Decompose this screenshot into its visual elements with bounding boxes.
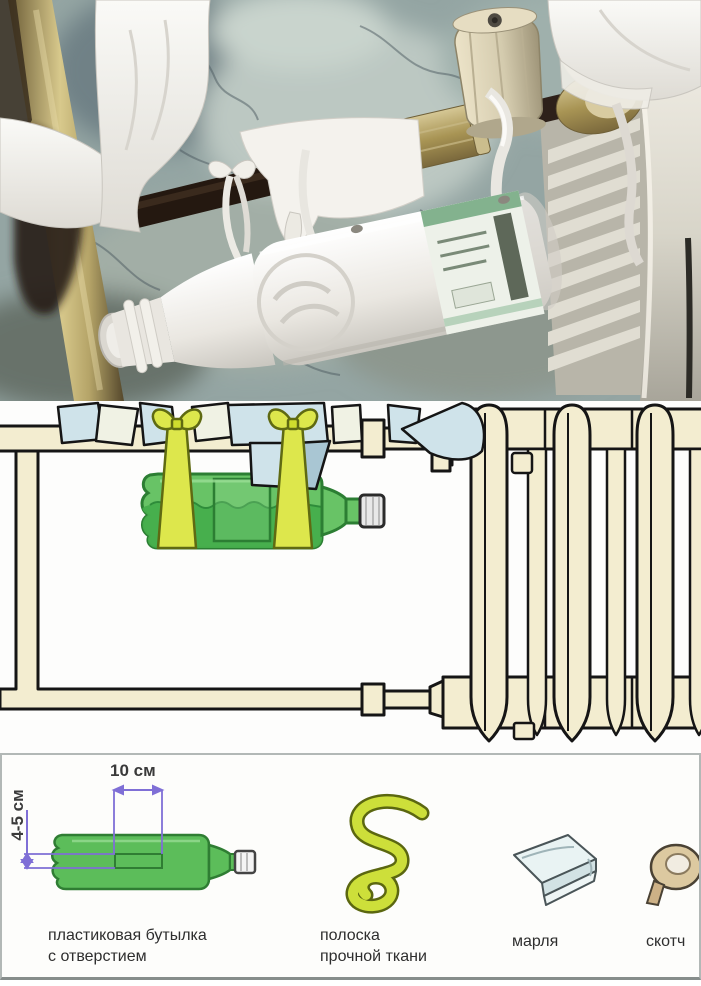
diy-humidifier-instruction: 10 см 4-5 см пластиковая бутылка с отвер… xyxy=(0,0,701,986)
radiator-plug xyxy=(512,453,532,473)
radiator-front-fins xyxy=(471,405,673,741)
radiator-bottle-photo xyxy=(0,0,701,401)
label-line: полоска xyxy=(320,925,427,946)
cut-hole xyxy=(214,479,270,541)
fabric-strip-icon xyxy=(353,801,422,906)
label-line: с отверстием xyxy=(48,946,207,967)
label-line: пластиковая бутылка xyxy=(48,925,207,946)
label-tape: скотч xyxy=(646,931,685,952)
label-fabric-strip: полоска прочной ткани xyxy=(320,925,427,967)
bottle-cap xyxy=(360,495,384,527)
materials-panel-frame: 10 см 4-5 см пластиковая бутылка с отвер… xyxy=(0,753,701,980)
hole-width-measurement: 10 см xyxy=(110,761,156,781)
diagram-radiator xyxy=(443,405,701,741)
diagram-pipes xyxy=(0,413,452,717)
installation-diagram xyxy=(0,401,701,753)
label-plastic-bottle: пластиковая бутылка с отверстием xyxy=(48,925,207,967)
gauze-icon xyxy=(514,835,596,905)
cap xyxy=(235,851,255,873)
tape-icon xyxy=(647,845,699,905)
photo-section xyxy=(0,0,701,401)
label-line: марля xyxy=(512,931,558,952)
diagram-section xyxy=(0,401,701,753)
hole-height-measurement: 4-5 см xyxy=(8,789,28,840)
label-gauze: марля xyxy=(512,931,558,952)
materials-panel: 10 см 4-5 см пластиковая бутылка с отвер… xyxy=(0,753,701,986)
radiator-drain xyxy=(514,723,534,739)
bottle-with-hole-icon xyxy=(52,835,255,889)
label-line: скотч xyxy=(646,931,685,952)
label-line: прочной ткани xyxy=(320,946,427,967)
radiator-gap xyxy=(688,238,690,398)
